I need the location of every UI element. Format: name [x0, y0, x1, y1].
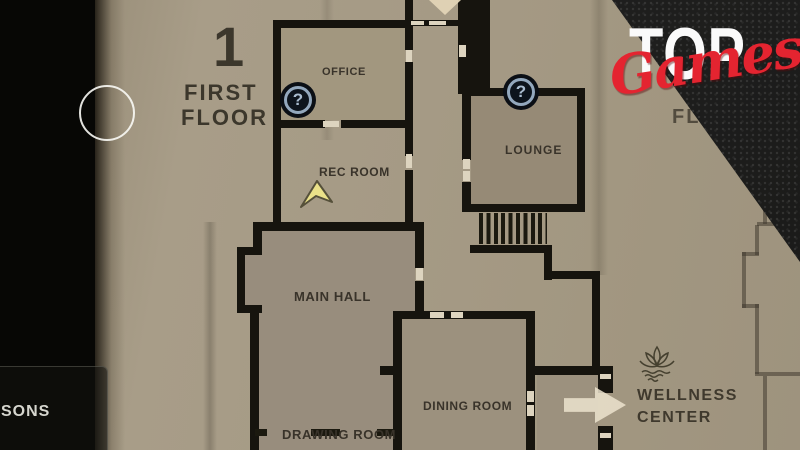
door-marker	[430, 312, 444, 318]
door-marker	[459, 45, 466, 57]
wall	[592, 271, 600, 371]
door-marker	[527, 391, 534, 402]
room-label-lounge: LOUNGE	[505, 143, 562, 157]
door-marker	[429, 21, 446, 25]
wall	[526, 311, 535, 450]
dashed-wall	[255, 429, 267, 436]
door-marker	[527, 405, 534, 416]
wall	[462, 96, 471, 160]
room-label-office: OFFICE	[322, 66, 366, 78]
door-marker	[416, 268, 423, 280]
adjacent-floor-label: FLOOR	[672, 106, 752, 129]
wall	[577, 88, 585, 212]
faded-wall	[755, 225, 759, 255]
room-main-hall-area	[259, 231, 415, 450]
door-marker	[323, 121, 339, 127]
wall	[273, 120, 325, 128]
room-label-dining-room: DINING ROOM	[423, 399, 512, 413]
room-dining-area	[402, 319, 526, 450]
floor-number: 1	[213, 14, 244, 79]
question-glyph: ?	[516, 82, 526, 102]
door-marker	[463, 159, 470, 169]
faded-wall	[763, 376, 767, 450]
door-post	[598, 366, 613, 393]
faded-wall	[755, 304, 759, 374]
door-marker	[451, 312, 463, 318]
door-post	[598, 426, 613, 450]
door-marker	[406, 154, 412, 168]
wall	[237, 247, 245, 313]
wall	[273, 20, 413, 28]
room-label-rec-room: REC ROOM	[319, 165, 390, 179]
question-marker-icon[interactable]: ?	[284, 86, 312, 114]
wellness-line2: CENTER	[637, 407, 738, 429]
room-label-wellness-center: WELLNESS CENTER	[637, 385, 738, 429]
wall	[253, 222, 424, 231]
door-marker	[411, 21, 424, 25]
door-marker	[406, 50, 412, 62]
wall	[405, 62, 413, 156]
wall	[380, 366, 394, 375]
question-glyph: ?	[293, 90, 303, 110]
floor-label-line1: FIRST	[184, 80, 258, 106]
wall	[470, 245, 552, 253]
cursor-circle[interactable]	[79, 85, 135, 141]
room-small-area	[537, 375, 598, 450]
game-map-screen: 1 FIRST FLOOR FLOOR OFFICE REC ROOM LOUN…	[0, 0, 800, 450]
wall	[415, 222, 424, 268]
question-marker-icon[interactable]: ?	[507, 78, 535, 106]
wall	[532, 366, 600, 375]
lotus-icon	[634, 341, 680, 385]
room-label-main-hall: MAIN HALL	[294, 289, 371, 304]
room-label-drawing-room: DRAWING ROOM	[282, 427, 396, 442]
room-main-hall-bay	[245, 255, 261, 305]
wellness-line1: WELLNESS	[637, 385, 738, 407]
wall	[462, 204, 585, 212]
faded-wall	[742, 252, 746, 308]
door-marker	[600, 374, 611, 379]
floor-label-line2: FLOOR	[181, 105, 268, 131]
wall	[393, 311, 534, 319]
door-marker	[463, 171, 470, 181]
hud-partial-text: SONS	[1, 403, 50, 421]
player-arrow-icon	[300, 180, 336, 210]
faded-wall	[755, 372, 800, 376]
stairs-icon	[479, 213, 547, 244]
faded-wall	[763, 190, 767, 224]
door-marker	[600, 433, 611, 438]
entrance-arrow-icon	[429, 0, 461, 15]
wall	[341, 120, 413, 128]
